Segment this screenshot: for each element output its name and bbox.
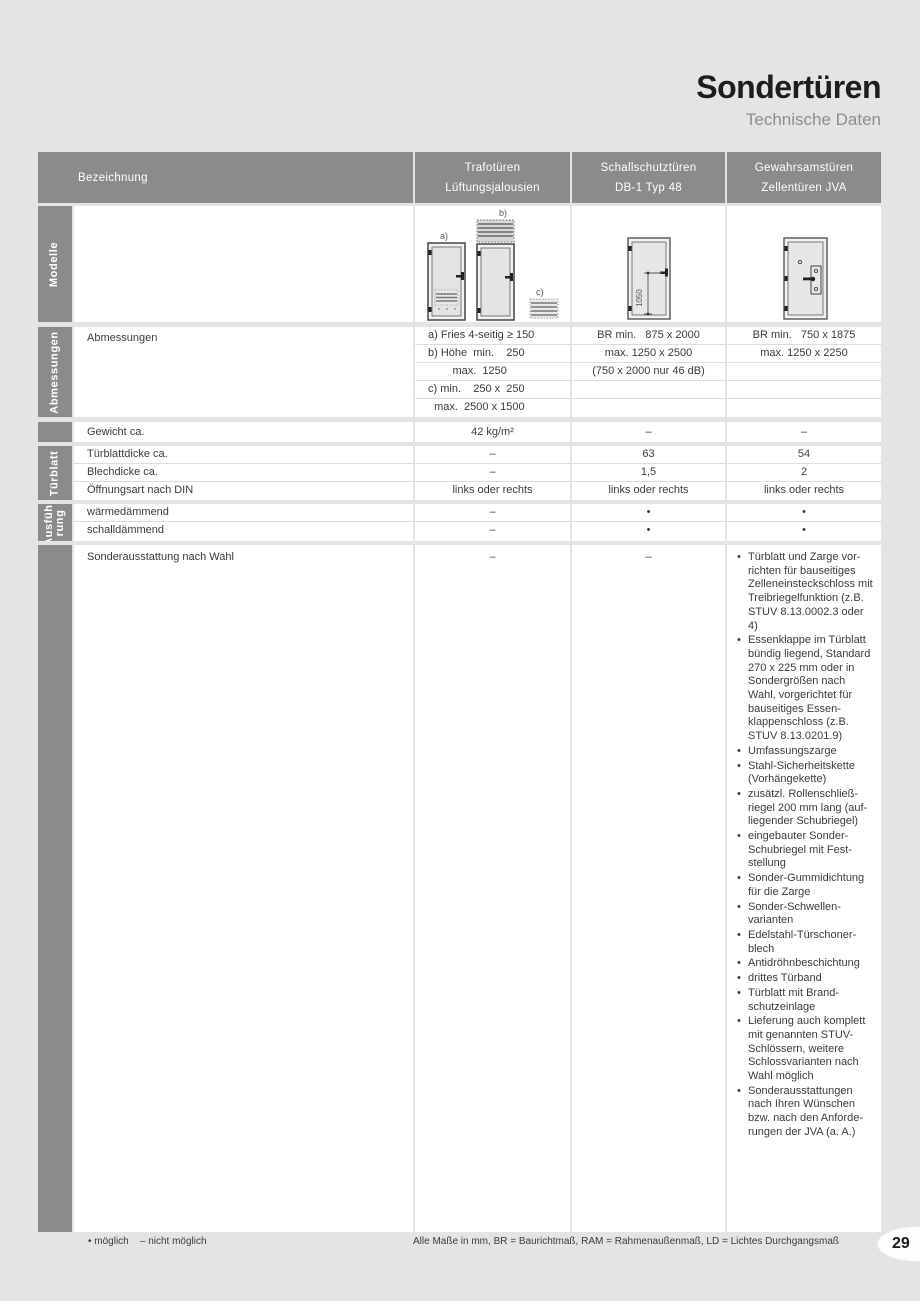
gewicht-jva-value: –	[727, 422, 881, 442]
gewicht-trafo-value: 42 kg/m²	[415, 422, 570, 442]
row-label: Blechdicke ca.	[74, 464, 413, 482]
page-number-badge: 29	[877, 1226, 920, 1262]
trafo-door-diagrams: a) b)	[415, 206, 570, 322]
column-header-label: Gewahrsamstüren	[755, 158, 853, 178]
table-value: 2	[727, 464, 881, 482]
sidebar-label-abmessungen: Abmessungen	[38, 327, 72, 417]
abmessungen-jva-cell: BR min. 750 x 1875 max. 1250 x 2250	[727, 327, 881, 417]
list-item: Sonder-Schwellen­varianten	[737, 901, 873, 928]
abmessungen-schallschutz-cell: BR min. 875 x 2000 max. 1250 x 2500 (750…	[572, 327, 725, 417]
diagram-label-b: b)	[499, 208, 507, 218]
technical-data-table: Bezeichnung Trafotüren Lüftungsjalousien…	[38, 152, 881, 1232]
row-label: Öffnungsart nach DIN	[74, 482, 413, 500]
sonder-trafo-value: –	[415, 545, 570, 1232]
gewicht-label-cell: Gewicht ca.	[74, 422, 413, 442]
dimension-line: b) Höhe min. 250	[415, 345, 570, 363]
dimension-line	[727, 363, 881, 381]
gewicht-schallschutz-value: –	[572, 422, 725, 442]
sonder-jva-cell: Türblatt und Zarge vor­richten für bause…	[727, 545, 881, 1232]
dimension-line: c) min. 250 x 250	[415, 381, 570, 399]
row-label: Türblattdicke ca.	[74, 446, 413, 464]
dimension-line: max. 1250 x 2250	[727, 345, 881, 363]
dimension-line: max. 1250 x 2500	[572, 345, 725, 363]
sidebar-label-line: rung	[55, 504, 66, 541]
dimension-line: (750 x 2000 nur 46 dB)	[572, 363, 725, 381]
column-header-gewahrsamstueren: Gewahrsamstüren Zellentüren JVA	[727, 152, 881, 203]
sonder-feature-list: Türblatt und Zarge vor­richten für bause…	[727, 545, 881, 1140]
table-value: 54	[727, 446, 881, 464]
ausfuehrung-labels-cell: wärmedämmend schalldämmend	[74, 504, 413, 541]
table-value: 1,5	[572, 464, 725, 482]
section-abmessungen: Abmessungen Abmessungen a) Fries 4-seiti…	[38, 327, 881, 417]
list-item: Edelstahl-Türschoner­blech	[737, 929, 873, 956]
column-header-label: Zellentüren JVA	[761, 178, 846, 198]
section-tuerblatt: Türblatt Türblattdicke ca. Blechdicke ca…	[38, 446, 881, 500]
table-value: •	[572, 504, 725, 522]
list-item: Essenklappe im Tür­blatt bündig liegend,…	[737, 634, 873, 744]
section-sonderausstattung: Sonderausstattung nach Wahl – – Türblatt…	[38, 545, 881, 1232]
table-value: –	[415, 504, 570, 522]
dimension-line: a) Fries 4-seitig ≥ 150	[415, 327, 570, 345]
diagram-label-a: a)	[440, 231, 448, 241]
tuerblatt-schallschutz-cell: 63 1,5 links oder rechts	[572, 446, 725, 500]
table-value: links oder rechts	[727, 482, 881, 500]
row-label: Abmessungen	[74, 327, 413, 345]
table-value: •	[727, 522, 881, 540]
list-item: drittes Türband	[737, 972, 873, 986]
sonder-schallschutz-value: –	[572, 545, 725, 1232]
list-item: Sonderausstattungen nach Ihren Wünschen …	[737, 1085, 873, 1140]
sidebar-label-modelle: Modelle	[38, 206, 72, 322]
sidebar-label-ausfuehrung: Ausfüh- rung	[38, 504, 72, 541]
sidebar-label-text: Abmessungen	[50, 331, 61, 413]
dimension-line: BR min. 875 x 2000	[572, 327, 725, 345]
modelle-empty-cell	[74, 206, 413, 322]
page-number: 29	[892, 1235, 910, 1253]
table-value: •	[727, 504, 881, 522]
ausfuehrung-schallschutz-cell: • •	[572, 504, 725, 541]
tuerblatt-trafo-cell: – – links oder rechts	[415, 446, 570, 500]
section-modelle: Modelle a) b)	[38, 206, 881, 322]
table-value: links oder rechts	[415, 482, 570, 500]
list-item: zusätzl. Rollenschließ­riegel 200 mm lan…	[737, 788, 873, 829]
legend-text: • möglich – nicht möglich	[88, 1236, 207, 1247]
sidebar-label-text: Türblatt	[50, 450, 61, 496]
table-value: –	[415, 446, 570, 464]
list-item: Sonder-Gummidichtung für die Zarge	[737, 872, 873, 899]
table-value: links oder rechts	[572, 482, 725, 500]
sidebar-label-text: Modelle	[50, 241, 61, 286]
list-item: Antidröhnbeschichtung	[737, 957, 873, 971]
abmessungen-label-cell: Abmessungen	[74, 327, 413, 417]
dimension-line	[572, 381, 725, 399]
trafo-doors-svg: a) b)	[415, 206, 570, 322]
sidebar-spacer	[38, 422, 72, 442]
column-header-bezeichnung: Bezeichnung	[38, 152, 413, 203]
column-header-trafotueren: Trafotüren Lüftungsjalousien	[415, 152, 570, 203]
diagram-label-c: c)	[536, 287, 544, 297]
dimension-line: max. 1250	[415, 363, 570, 381]
list-item: eingebauter Sonder-Schubriegel mit Fest­…	[737, 830, 873, 871]
dimension-line: BR min. 750 x 1875	[727, 327, 881, 345]
table-value: 63	[572, 446, 725, 464]
column-header-schallschutztueren: Schallschutztüren DB-1 Typ 48	[572, 152, 725, 203]
jva-door-svg	[727, 206, 881, 322]
dimension-line: max. 2500 x 1500	[415, 399, 570, 417]
sidebar-label-text: Ausfüh- rung	[44, 504, 66, 541]
dimension-line	[727, 381, 881, 399]
row-label: Gewicht ca.	[74, 422, 413, 440]
column-header-label: Lüftungsjalousien	[445, 178, 540, 198]
ausfuehrung-jva-cell: • •	[727, 504, 881, 541]
row-label: schalldämmend	[74, 522, 413, 540]
ausfuehrung-trafo-cell: – –	[415, 504, 570, 541]
jva-door-diagram	[727, 206, 881, 322]
page-title: Sondertüren	[696, 70, 881, 104]
row-label: Sonderausstattung nach Wahl	[74, 545, 413, 563]
table-value: –	[415, 522, 570, 540]
dimension-line	[572, 399, 725, 417]
table-value: •	[572, 522, 725, 540]
tuerblatt-labels-cell: Türblattdicke ca. Blechdicke ca. Öffnung…	[74, 446, 413, 500]
sidebar-label-tuerblatt: Türblatt	[38, 446, 72, 500]
column-header-label: Schallschutztüren	[601, 158, 697, 178]
table-header-row: Bezeichnung Trafotüren Lüftungsjalousien…	[38, 152, 881, 203]
list-item: Lieferung auch komplett mit genannten ST…	[737, 1015, 873, 1084]
section-gewicht: Gewicht ca. 42 kg/m² – –	[38, 422, 881, 442]
column-header-label: Bezeichnung	[78, 168, 148, 188]
abmessungen-trafo-cell: a) Fries 4-seitig ≥ 150 b) Höhe min. 250…	[415, 327, 570, 417]
sonder-label-cell: Sonderausstattung nach Wahl	[74, 545, 413, 1232]
schallschutz-door-diagram: 1050	[572, 206, 725, 322]
catalog-page: Sondertüren Technische Daten Bezeichnung…	[0, 0, 920, 1301]
tuerblatt-jva-cell: 54 2 links oder rechts	[727, 446, 881, 500]
sidebar-spacer	[38, 545, 72, 1232]
table-value: –	[415, 464, 570, 482]
dimension-label-1050: 1050	[635, 289, 644, 307]
schallschutz-door-svg: 1050	[572, 206, 725, 322]
measurement-note: Alle Maße in mm, BR = Baurichtmaß, RAM =…	[413, 1236, 839, 1247]
list-item: Umfassungszarge	[737, 745, 873, 759]
row-label: wärmedämmend	[74, 504, 413, 522]
page-subtitle: Technische Daten	[696, 110, 881, 130]
column-header-label: Trafotüren	[465, 158, 521, 178]
section-ausfuehrung: Ausfüh- rung wärmedämmend schalldämmend …	[38, 504, 881, 541]
dimension-line	[727, 399, 881, 417]
column-header-label: DB-1 Typ 48	[615, 178, 682, 198]
list-item: Stahl-Sicherheitskette (Vorhängekette)	[737, 760, 873, 787]
list-item: Türblatt und Zarge vor­richten für bause…	[737, 551, 873, 633]
title-block: Sondertüren Technische Daten	[696, 70, 881, 130]
list-item: Türblatt mit Brand­schutzeinlage	[737, 987, 873, 1014]
